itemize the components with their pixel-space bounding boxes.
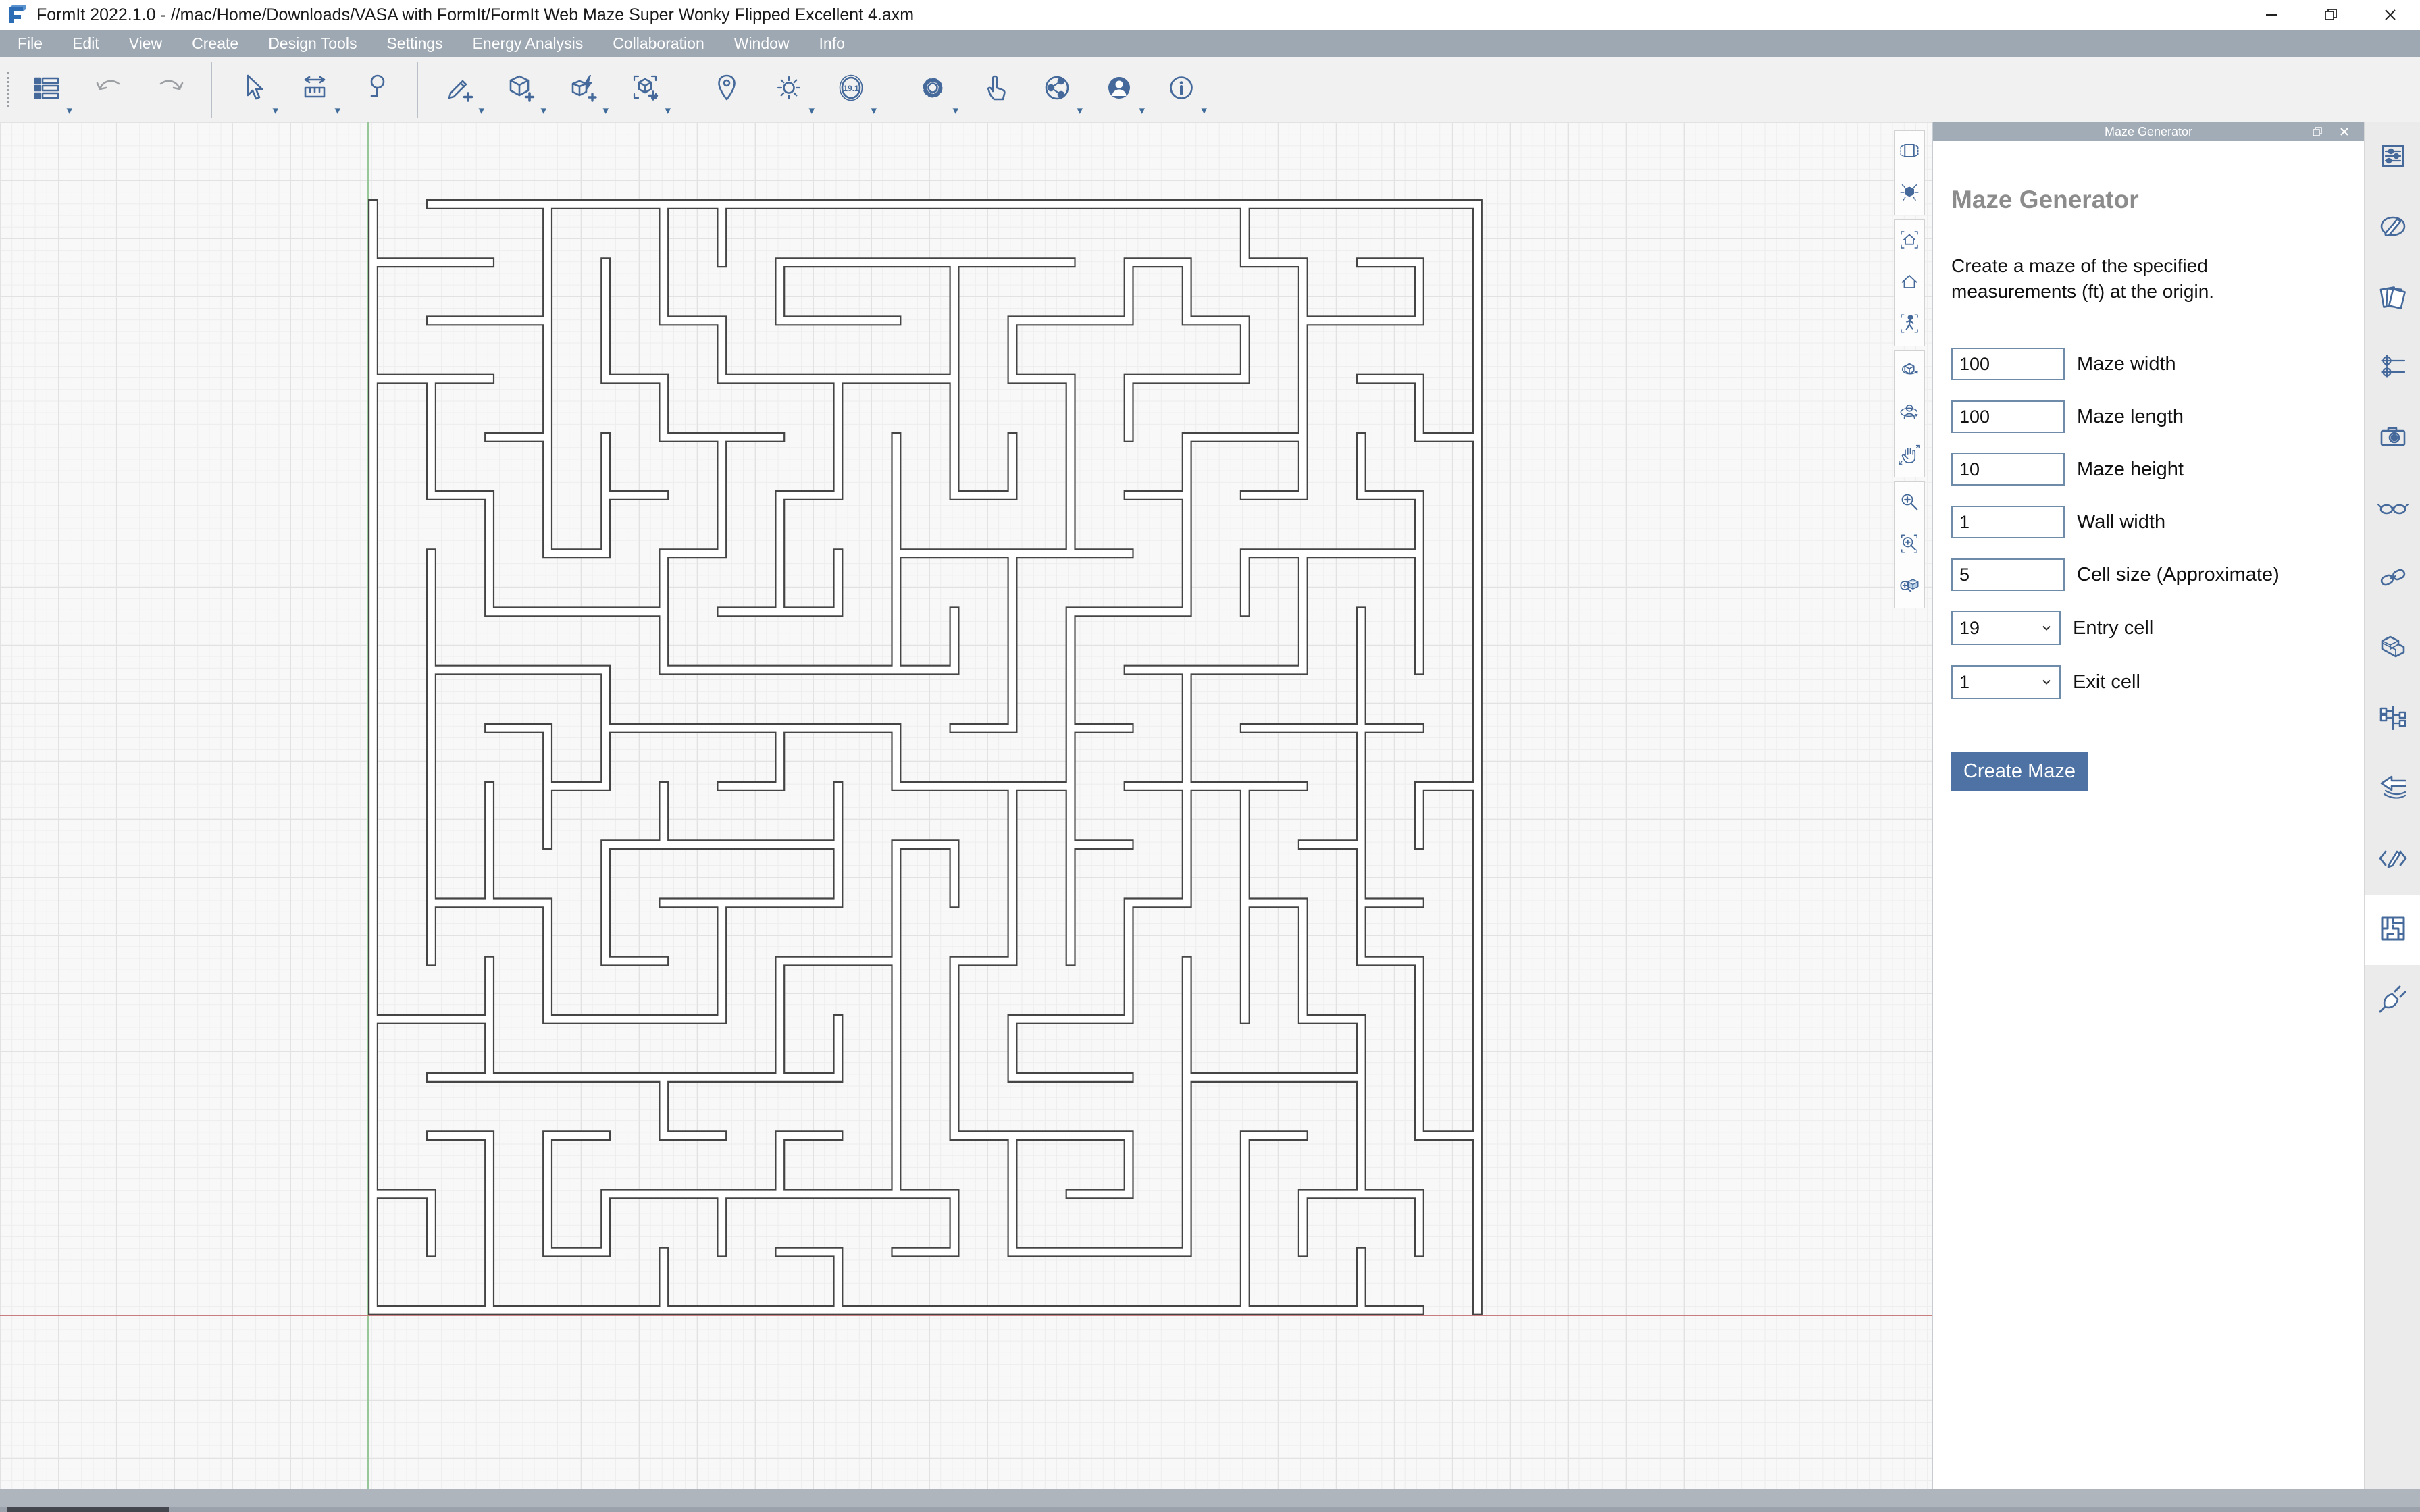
menu-collaboration[interactable]: Collaboration xyxy=(598,30,719,57)
dropdown-arrow-icon[interactable]: ▾ xyxy=(478,105,484,116)
exit-cell-select[interactable]: 1 xyxy=(1951,665,2061,699)
home-view-icon xyxy=(1897,269,1922,297)
panel-description: Create a maze of the specified measureme… xyxy=(1951,253,2329,305)
sun-icon xyxy=(773,72,805,107)
entry-cell-select[interactable]: 19 xyxy=(1951,611,2061,645)
panel-heading: Maze Generator xyxy=(1951,186,2350,214)
menu-file[interactable]: File xyxy=(3,30,57,57)
exit-cell-row: 1Exit cell xyxy=(1951,665,2350,699)
home-view-button[interactable] xyxy=(1895,262,1924,304)
primitive-tool-button[interactable]: ▾ xyxy=(503,62,538,118)
cell-size-label: Cell size (Approximate) xyxy=(2077,564,2280,586)
menu-bar: FileEditViewCreateDesign ToolsSettingsEn… xyxy=(0,30,2420,57)
exit-cell-label: Exit cell xyxy=(2073,671,2140,694)
axon-view-icon xyxy=(1897,180,1922,208)
dropdown-arrow-icon[interactable]: ▾ xyxy=(952,105,958,116)
toolbar-separator xyxy=(892,62,892,118)
sun-study-icon: 19.1 xyxy=(835,72,867,107)
horizontal-scrollbar[interactable] xyxy=(0,1507,2420,1512)
sidebar-maze-generator-button[interactable] xyxy=(2365,895,2420,965)
toolbar-separator xyxy=(686,62,686,118)
maze-width-input[interactable] xyxy=(1951,348,2065,380)
plug-icon xyxy=(2377,983,2409,1018)
pan-button[interactable] xyxy=(1895,435,1924,477)
leader-balloon-icon xyxy=(361,72,393,107)
zoom-in-icon xyxy=(1897,490,1922,517)
pencil-plus-icon xyxy=(442,72,475,107)
dropdown-arrow-icon[interactable]: ▾ xyxy=(540,105,546,116)
entry-cell-label: Entry cell xyxy=(2073,617,2153,640)
main-toolbar: ▾▾▾▾▾▾▾▾19.1▾▾▾▾▾ xyxy=(0,57,2420,122)
maze-length-row: Maze length xyxy=(1951,400,2350,433)
sun-study-tool-button[interactable]: 19.1▾ xyxy=(833,62,869,118)
menu-create[interactable]: Create xyxy=(177,30,253,57)
settings-button[interactable]: ▾ xyxy=(915,62,950,118)
redo-button[interactable] xyxy=(153,62,188,118)
panel-title: Maze Generator xyxy=(1933,125,2364,139)
toolbar-drag-handle[interactable] xyxy=(7,72,11,107)
location-tool-button[interactable] xyxy=(709,62,744,118)
sidebar-import-layers-button[interactable] xyxy=(2365,754,2420,825)
sidebar-object-tree-button[interactable] xyxy=(2365,684,2420,754)
panel-close-button[interactable] xyxy=(2333,122,2356,141)
right-sidebar xyxy=(2364,122,2420,1489)
minimize-button[interactable] xyxy=(2242,0,2301,30)
layers-arrow-icon xyxy=(2377,772,2409,808)
share-globe-icon xyxy=(1041,72,1073,107)
pan-icon xyxy=(1897,442,1922,470)
sidebar-levels-button[interactable] xyxy=(2365,333,2420,403)
account-button[interactable]: ▾ xyxy=(1102,62,1137,118)
wall-width-input[interactable] xyxy=(1951,506,2065,538)
dropdown-arrow-icon[interactable]: ▾ xyxy=(871,105,877,116)
dropdown-arrow-icon[interactable]: ▾ xyxy=(1139,105,1145,116)
sidebar-visual-styles-button[interactable] xyxy=(2365,473,2420,544)
sidebar-solids-button[interactable] xyxy=(2365,614,2420,684)
main-menu-button[interactable]: ▾ xyxy=(29,62,64,118)
touch-hand-icon xyxy=(979,72,1011,107)
maze-width-label: Maze width xyxy=(2077,353,2176,375)
materials-icon xyxy=(2377,210,2409,246)
info-icon xyxy=(1165,72,1198,107)
sheets-icon xyxy=(2377,280,2409,316)
info-help-button[interactable]: ▾ xyxy=(1164,62,1199,118)
window-titlebar: FormIt 2022.1.0 - //mac/Home/Downloads/V… xyxy=(0,0,2420,30)
wall-width-row: Wall width xyxy=(1951,506,2350,538)
toolbar-separator xyxy=(417,62,418,118)
wall-width-label: Wall width xyxy=(2077,511,2165,533)
object-tree-icon xyxy=(2377,702,2409,737)
visual-styles-icon xyxy=(2377,491,2409,527)
cube-plus-icon xyxy=(505,72,537,107)
pin-icon xyxy=(711,72,743,107)
maze-height-label: Maze height xyxy=(2077,459,2184,481)
sidebar-scenes-button[interactable] xyxy=(2365,403,2420,473)
chevron-down-icon xyxy=(2040,622,2053,634)
script-editor-icon xyxy=(2377,842,2409,878)
panel-undock-button[interactable] xyxy=(2306,122,2329,141)
properties-icon xyxy=(2377,140,2409,176)
panel-titlebar[interactable]: Maze Generator xyxy=(1933,122,2364,141)
redo-icon xyxy=(155,72,187,107)
formit-window: FormIt 2022.1.0 - //mac/Home/Downloads/V… xyxy=(0,0,2420,1512)
orbit-icon xyxy=(1897,359,1922,386)
menu-info[interactable]: Info xyxy=(804,30,860,57)
dimension-tool-button[interactable]: ▾ xyxy=(297,62,332,118)
exit-cell-value: 1 xyxy=(1959,672,2040,693)
notched-cube-icon xyxy=(2377,631,2409,667)
create-maze-button[interactable]: Create Maze xyxy=(1951,752,2088,791)
group-tool-button[interactable]: ▾ xyxy=(627,62,663,118)
maze-generator-panel: Maze Generator Maze Generator Create a m… xyxy=(1932,122,2364,1489)
menu-settings[interactable]: Settings xyxy=(371,30,457,57)
dropdown-arrow-icon[interactable]: ▾ xyxy=(1077,105,1083,116)
maze-height-input[interactable] xyxy=(1951,453,2065,486)
viewport-canvas[interactable] xyxy=(0,122,1932,1489)
orbit-button[interactable] xyxy=(1895,351,1924,393)
dropdown-arrow-icon[interactable]: ▾ xyxy=(334,105,340,116)
maze-wall-fill xyxy=(374,205,1478,1311)
entry-cell-value: 19 xyxy=(1959,618,2040,639)
formit-logo-icon xyxy=(7,5,27,25)
generate-tool-button[interactable]: ▾ xyxy=(565,62,600,118)
dropdown-arrow-icon[interactable]: ▾ xyxy=(665,105,671,116)
view-faces-button[interactable] xyxy=(1895,131,1924,173)
maze-length-input[interactable] xyxy=(1951,400,2065,433)
cursor-icon xyxy=(236,72,269,107)
zoom-fit-icon xyxy=(1897,228,1922,255)
dropdown-arrow-icon[interactable]: ▾ xyxy=(808,105,815,116)
zoom-window-icon xyxy=(1897,531,1922,559)
dropdown-arrow-icon[interactable]: ▾ xyxy=(602,105,609,116)
menu-view[interactable]: View xyxy=(114,30,177,57)
svg-text:19.1: 19.1 xyxy=(843,84,859,93)
interact-tool-button[interactable] xyxy=(977,62,1012,118)
zoom-window-button[interactable] xyxy=(1895,524,1924,566)
look-around-icon xyxy=(1897,400,1922,428)
restore-button[interactable] xyxy=(2301,0,2361,30)
sidebar-plugins-button[interactable] xyxy=(2365,965,2420,1035)
dropdown-arrow-icon[interactable]: ▾ xyxy=(1201,105,1207,116)
maze-drawing xyxy=(0,122,1932,1489)
zoom-fit-button[interactable] xyxy=(1895,220,1924,262)
cube-brackets-plus-icon xyxy=(629,72,661,107)
draw-tool-button[interactable]: ▾ xyxy=(441,62,476,118)
shadows-tool-button[interactable]: ▾ xyxy=(771,62,806,118)
menu-design-tools[interactable]: Design Tools xyxy=(253,30,371,57)
close-button[interactable] xyxy=(2361,0,2420,30)
level-leader-tool-button[interactable] xyxy=(359,62,394,118)
menu-edit[interactable]: Edit xyxy=(57,30,114,57)
status-bar xyxy=(0,1489,2420,1512)
sidebar-sheets-button[interactable] xyxy=(2365,263,2420,333)
maze-width-row: Maze width xyxy=(1951,348,2350,380)
menu-energy-analysis[interactable]: Energy Analysis xyxy=(458,30,598,57)
zoom-in-button[interactable] xyxy=(1895,482,1924,524)
cell-size-input[interactable] xyxy=(1951,558,2065,591)
zoom-selection-button[interactable] xyxy=(1895,566,1924,608)
maze-length-label: Maze length xyxy=(2077,406,2184,428)
walk-view-button[interactable] xyxy=(1895,304,1924,346)
levels-icon xyxy=(2377,350,2409,386)
link-chain-icon xyxy=(2377,561,2409,597)
walk-view-icon xyxy=(1897,311,1922,339)
undo-button[interactable] xyxy=(91,62,126,118)
maze-icon xyxy=(2377,912,2409,948)
chevron-down-icon xyxy=(2040,676,2053,688)
undo-icon xyxy=(93,72,125,107)
cell-size-row: Cell size (Approximate) xyxy=(1951,558,2350,591)
dropdown-arrow-icon[interactable]: ▾ xyxy=(66,105,72,116)
gear-icon xyxy=(917,72,949,107)
maze-height-row: Maze height xyxy=(1951,453,2350,486)
entry-cell-row: 19Entry cell xyxy=(1951,611,2350,645)
menu-window[interactable]: Window xyxy=(719,30,804,57)
cube-lightning-plus-icon xyxy=(567,72,599,107)
sidebar-properties-button[interactable] xyxy=(2365,122,2420,192)
sidebar-link-button[interactable] xyxy=(2365,544,2420,614)
panel-fields: Maze widthMaze lengthMaze heightWall wid… xyxy=(1951,348,2350,699)
select-tool-button[interactable]: ▾ xyxy=(235,62,270,118)
share-button[interactable]: ▾ xyxy=(1039,62,1075,118)
toolbar-separator xyxy=(211,62,212,118)
dimension-icon xyxy=(299,72,331,107)
window-title: FormIt 2022.1.0 - //mac/Home/Downloads/V… xyxy=(36,5,914,25)
dropdown-arrow-icon[interactable]: ▾ xyxy=(272,105,278,116)
sidebar-materials-button[interactable] xyxy=(2365,192,2420,263)
sidebar-script-editor-button[interactable] xyxy=(2365,825,2420,895)
view-faces-icon xyxy=(1897,138,1922,166)
look-around-button[interactable] xyxy=(1895,393,1924,435)
axon-view-button[interactable] xyxy=(1895,173,1924,215)
view-toolbar xyxy=(1894,130,1925,608)
maze-wall-outline xyxy=(374,205,1478,1311)
scenes-icon xyxy=(2377,421,2409,457)
horizontal-scrollbar-thumb[interactable] xyxy=(7,1507,169,1512)
app-menu-icon xyxy=(30,72,63,107)
zoom-selection-icon xyxy=(1897,573,1922,601)
avatar-icon xyxy=(1103,72,1135,107)
